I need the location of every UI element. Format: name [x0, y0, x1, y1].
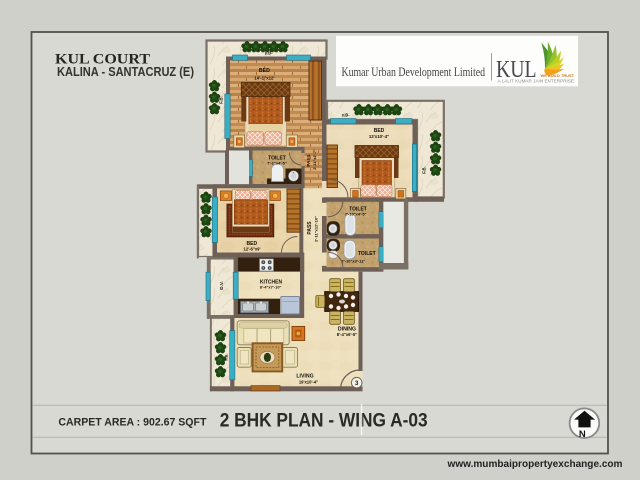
svg-text:BED: BED — [259, 68, 270, 74]
svg-text:www.mumbaipropertyexchange.com: www.mumbaipropertyexchange.com — [447, 458, 623, 470]
svg-text:KALINA - SANTACRUZ (E): KALINA - SANTACRUZ (E) — [57, 65, 194, 79]
svg-text:2'-11"x2'-7": 2'-11"x2'-7" — [313, 149, 317, 170]
svg-text:A LALIT KUMAR JAIN ENTERPRISE: A LALIT KUMAR JAIN ENTERPRISE — [498, 79, 575, 84]
svg-text:TOILET: TOILET — [358, 251, 376, 257]
svg-text:7'-10"x4'-5": 7'-10"x4'-5" — [345, 211, 367, 216]
svg-text:14'-1"x12': 14'-1"x12' — [254, 76, 274, 81]
svg-text:CARPET AREA : 902.67 SQFT: CARPET AREA : 902.67 SQFT — [58, 417, 206, 429]
svg-text:D.V.: D.V. — [219, 281, 224, 290]
svg-text:7'-1"x4'-5": 7'-1"x4'-5" — [267, 161, 287, 166]
svg-text:Kumar Urban Development Limite: Kumar Urban Development Limited — [342, 65, 486, 79]
svg-text:8'-4"x6'-5": 8'-4"x6'-5" — [337, 332, 357, 337]
svg-text:WE BUILD TRUST: WE BUILD TRUST — [541, 74, 575, 78]
svg-text:N: N — [579, 429, 586, 440]
svg-text:F.B.: F.B. — [219, 96, 224, 103]
svg-text:8'-4"x7'-10": 8'-4"x7'-10" — [260, 285, 282, 290]
svg-text:19'x10'-4": 19'x10'-4" — [299, 380, 318, 385]
svg-text:2'-11"x12'-10": 2'-11"x12'-10" — [314, 216, 319, 242]
svg-text:PASS: PASS — [307, 221, 313, 235]
svg-text:12'-6"x9': 12'-6"x9' — [243, 247, 260, 252]
svg-text:13'x10'-4": 13'x10'-4" — [369, 134, 389, 139]
svg-text:PASS: PASS — [306, 154, 311, 166]
svg-text:F.B.: F.B. — [422, 166, 427, 173]
svg-text:7'-10"x3'-11": 7'-10"x3'-11" — [342, 259, 366, 264]
svg-text:2 BHK PLAN - WING A-03: 2 BHK PLAN - WING A-03 — [220, 410, 428, 432]
svg-text:F.B.: F.B. — [224, 353, 229, 360]
